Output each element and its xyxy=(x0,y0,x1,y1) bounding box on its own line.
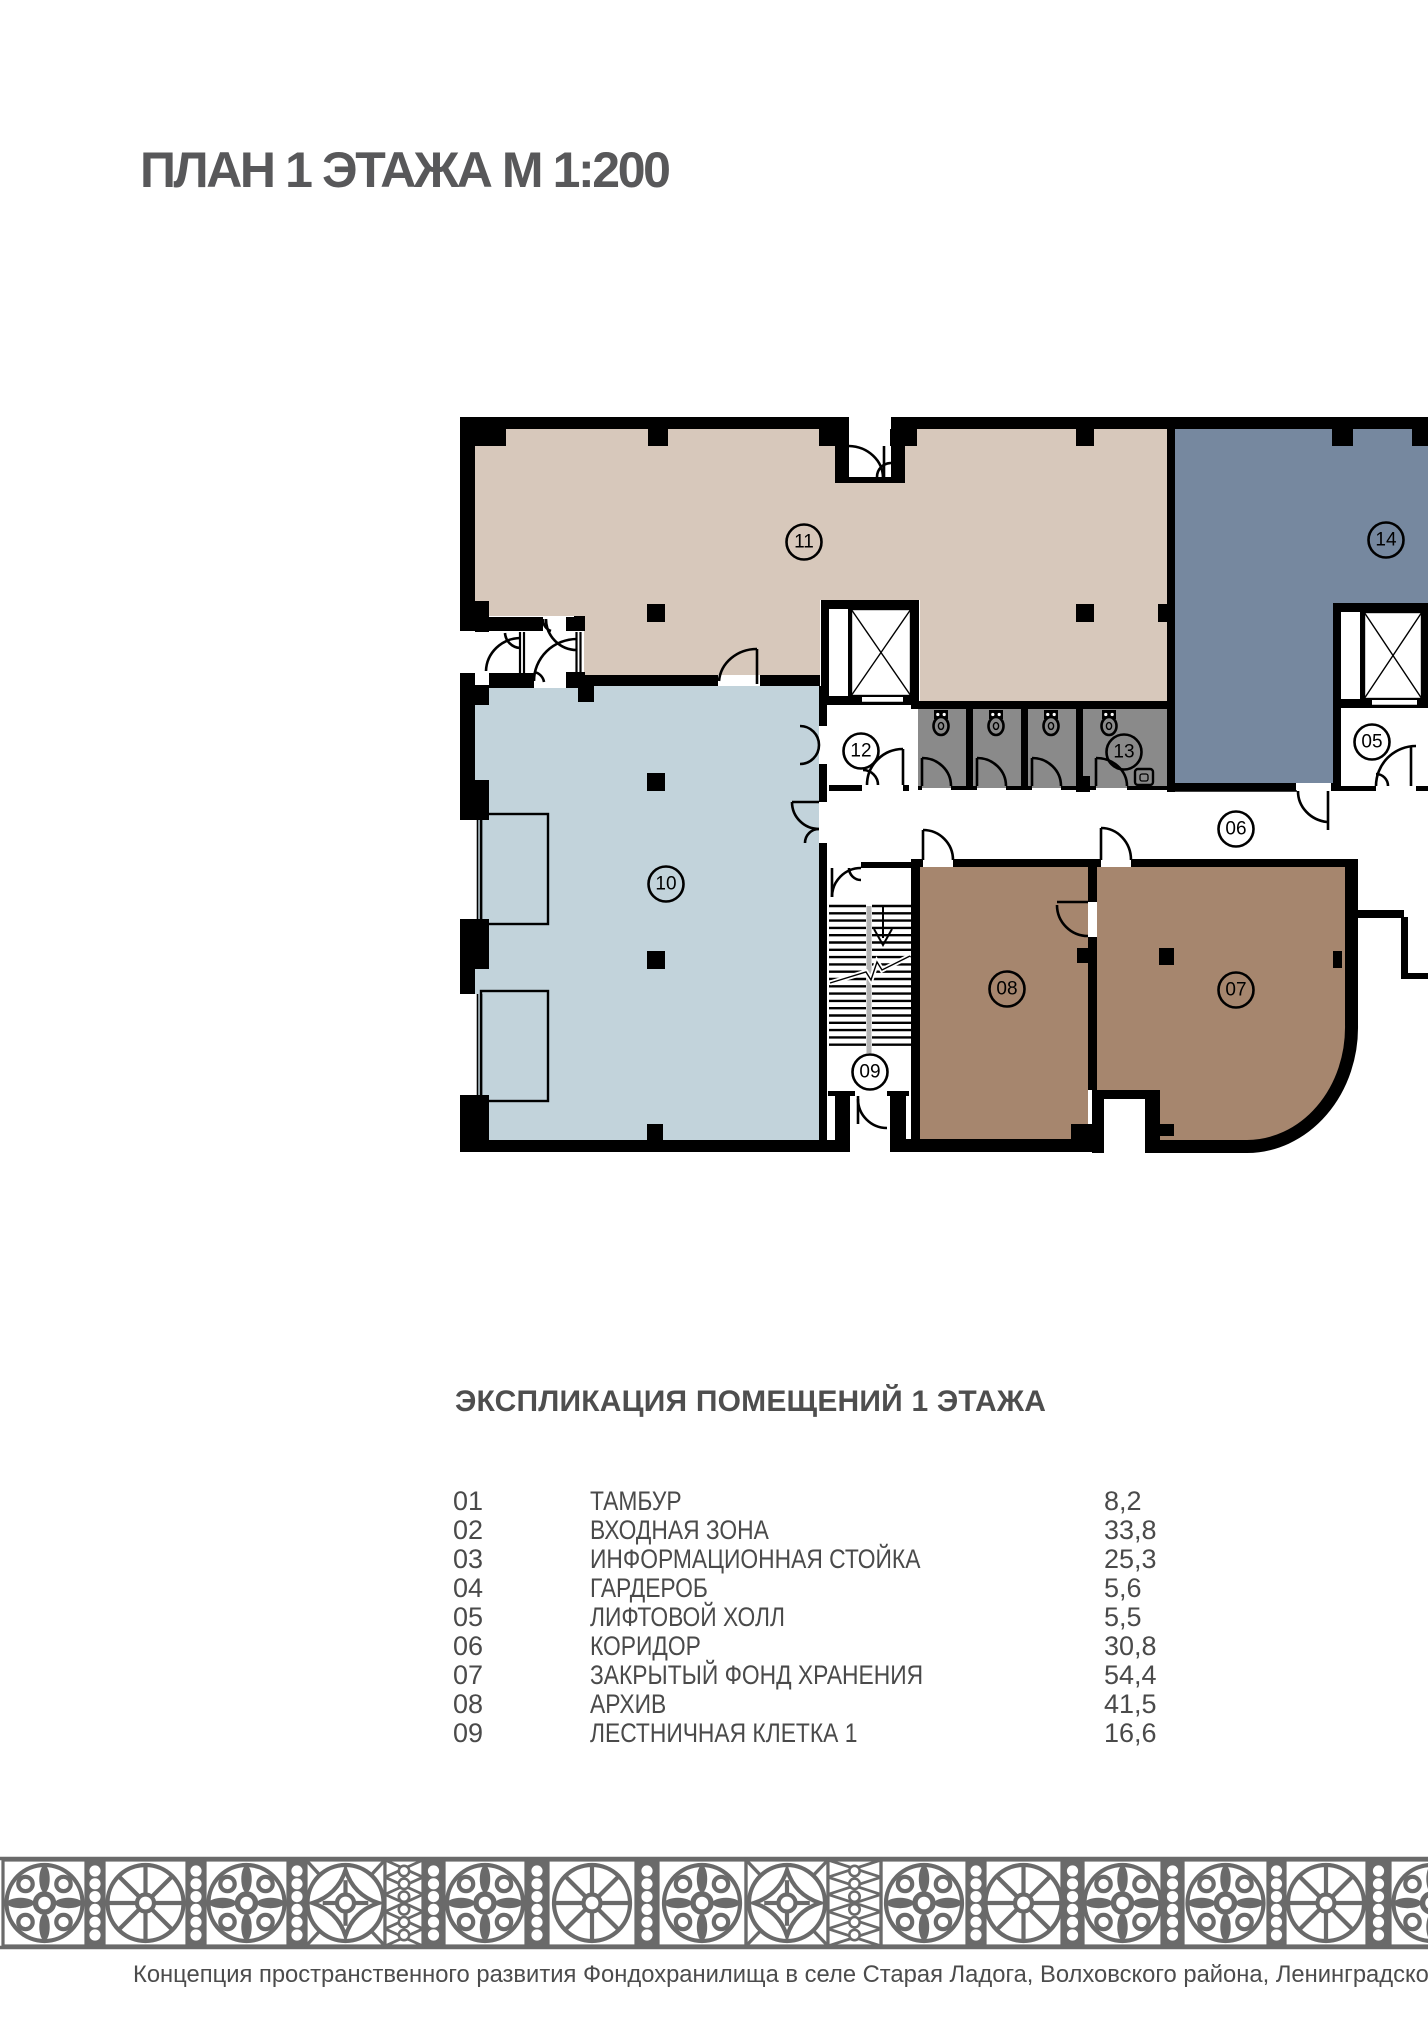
svg-text:08: 08 xyxy=(996,979,1017,1000)
svg-text:07: 07 xyxy=(1225,980,1246,1001)
svg-text:11: 11 xyxy=(794,532,814,553)
svg-text:05: 05 xyxy=(1361,732,1382,753)
svg-text:13: 13 xyxy=(1113,742,1134,763)
svg-text:10: 10 xyxy=(655,874,676,895)
svg-text:09: 09 xyxy=(859,1062,880,1083)
svg-text:12: 12 xyxy=(850,741,871,762)
svg-text:14: 14 xyxy=(1375,530,1397,551)
svg-text:06: 06 xyxy=(1225,819,1246,840)
